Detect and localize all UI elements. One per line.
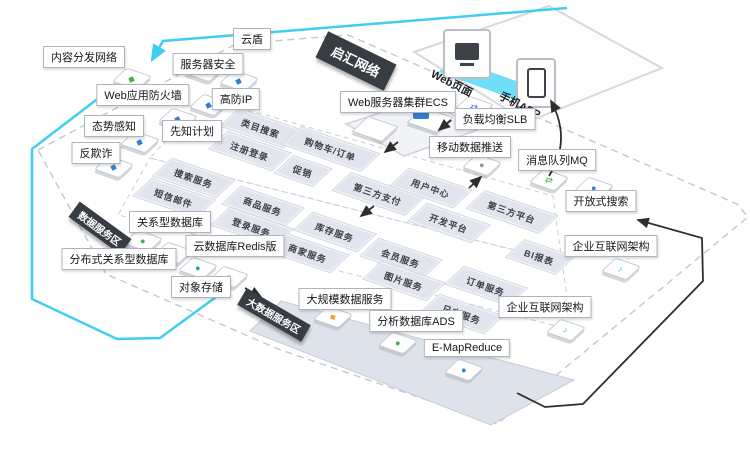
push-arrow: [469, 177, 481, 188]
label-server-security: 服务器安全: [173, 53, 244, 75]
label-yundun: 云盾: [233, 28, 271, 50]
label-anti-ddos-ip: 高防IP: [212, 88, 260, 110]
label-redis: 云数据库Redis版: [185, 235, 284, 257]
label-emapreduce: E-MapReduce: [424, 339, 510, 357]
label-waf: Web应用防火墙: [96, 84, 189, 106]
label-rds: 关系型数据库: [129, 211, 211, 233]
label-xianzhi-plan: 先知计划: [162, 120, 222, 142]
label-ecs-cluster: Web服务器集群ECS: [340, 91, 456, 113]
label-cdn: 内容分发网络: [43, 46, 125, 68]
label-oss: 对象存储: [171, 276, 231, 298]
architecture-diagram: 内容分发网络云盾服务器安全Web应用防火墙高防IP态势感知先知计划反欺诈Web服…: [0, 0, 750, 450]
label-situation-awareness: 态势感知: [84, 115, 144, 137]
label-maxcompute: 大规模数据服务: [299, 288, 392, 310]
label-drds: 分布式关系型数据库: [62, 248, 177, 270]
label-mq: 消息队列MQ: [518, 149, 596, 171]
ecs-arrow: [439, 120, 451, 130]
pay-arrow: [361, 206, 374, 216]
label-edas-1: 企业互联网架构: [565, 235, 658, 257]
label-anti-fraud: 反欺诈: [72, 142, 121, 164]
label-ads: 分析数据库ADS: [369, 310, 463, 332]
label-slb: 负载均衡SLB: [455, 108, 536, 130]
label-edas-2: 企业互联网架构: [499, 296, 592, 318]
label-mobile-push: 移动数据推送: [429, 136, 511, 158]
label-opensearch: 开放式搜索: [566, 190, 637, 212]
ecs-to-tiles-arrow: [385, 142, 398, 152]
